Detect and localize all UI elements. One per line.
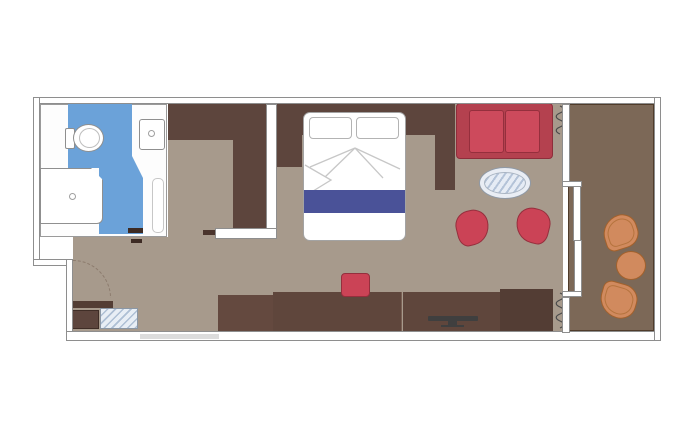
wardrobe-top	[168, 104, 233, 140]
bathroom-slider-bracket-top	[128, 228, 143, 233]
entry-glass-top-unit	[100, 308, 138, 329]
desk-section-left	[218, 295, 273, 331]
bathroom-door-panel	[152, 178, 164, 233]
wall-balcony-lower	[562, 297, 570, 333]
balcony-round-table	[616, 251, 646, 280]
shower-drain-icon	[69, 193, 76, 200]
wardrobe-handle	[203, 230, 215, 235]
sliding-door-panel-2	[574, 240, 582, 292]
desk-section-right	[500, 289, 553, 331]
entry-shelf	[66, 301, 113, 308]
sofa-cushion-right	[505, 110, 540, 153]
desk-section-main	[273, 292, 402, 331]
wall-balcony-upper	[562, 104, 570, 186]
wall-bottom-threshold	[140, 334, 219, 339]
nightstand-right	[435, 135, 455, 190]
pillow-right	[356, 117, 399, 139]
wardrobe-column	[233, 104, 266, 230]
sliding-door-panel-1	[573, 186, 581, 241]
floor-plan	[0, 0, 700, 433]
pillow-left	[309, 117, 352, 139]
bed-runner	[304, 190, 405, 213]
balcony-deck-chair-top-cushion	[604, 215, 638, 248]
wall-left-lower	[66, 259, 73, 341]
tv-base-icon	[441, 325, 464, 327]
wall-left-upper	[33, 97, 40, 266]
wall-bedroom-left-bottom	[215, 228, 277, 239]
oval-glass-table-top	[484, 172, 526, 194]
wall-right	[654, 97, 661, 341]
bathroom-slider-bracket-bottom	[131, 239, 142, 243]
washbasin-drain-icon	[148, 130, 155, 137]
wall-top	[33, 97, 661, 104]
sofa-cushion-left	[469, 110, 504, 153]
balcony-deck-chair-bottom-cushion	[601, 284, 636, 318]
toilet-seat-icon	[79, 128, 100, 148]
wall-bedroom-left	[266, 104, 277, 230]
wardrobe-alcove-floor	[168, 140, 233, 237]
stool	[341, 273, 370, 297]
